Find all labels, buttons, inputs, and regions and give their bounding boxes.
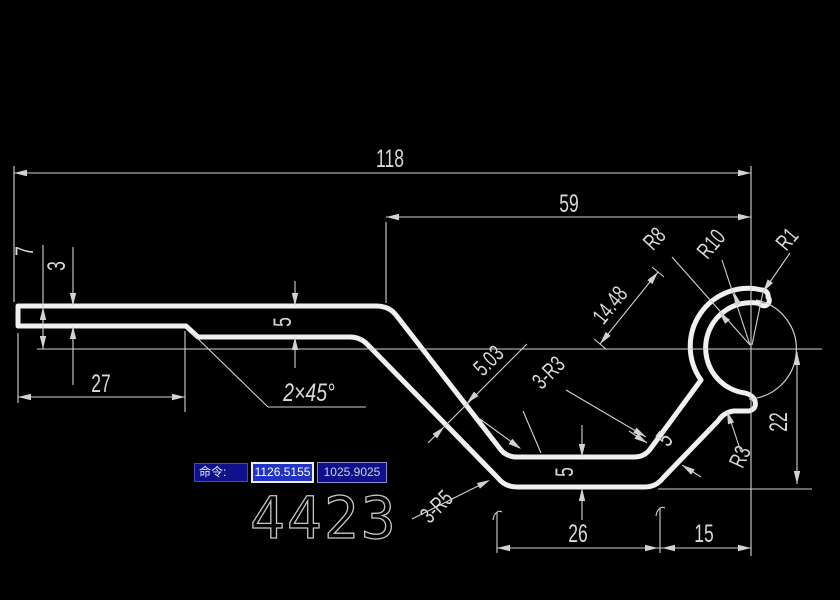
dim-diag-thickness: 5.03 [469, 341, 509, 381]
dim-web-thickness: 5 [268, 317, 297, 327]
part-profile-outline [18, 288, 769, 487]
dim-left-flat: 27 [91, 369, 110, 398]
note-fillets-r3: 3-R3 [528, 352, 571, 395]
dim-overall-length: 118 [376, 144, 404, 173]
dimension-arrowheads [14, 170, 800, 551]
profile-drawing: 118 59 7 3 27 2×45° 5 5.03 3-R3 14.48 R8… [0, 0, 840, 600]
chamfer-note: 2×45° [282, 379, 335, 407]
dim-hook-offset: 14.48 [588, 282, 633, 329]
radius-r3-label: R3 [725, 442, 757, 471]
dim-upper-length: 59 [559, 189, 578, 218]
coordinate-x-value: 1126.5155 [253, 464, 312, 481]
coordinate-x-input[interactable]: 1126.5155 [251, 462, 314, 483]
command-prompt: 命令: [194, 463, 248, 482]
cad-canvas: 118 59 7 3 27 2×45° 5 5.03 3-R3 14.48 R8… [0, 0, 840, 600]
radius-r1-label: R1 [771, 223, 804, 255]
note-fillets-r5: 3-R5 [416, 486, 459, 529]
radius-r8-label: R8 [639, 223, 672, 255]
dim-sheet-thickness: 3 [42, 261, 71, 271]
dim-right-flat: 15 [694, 519, 713, 548]
dim-bottom-flat: 26 [568, 519, 587, 548]
dim-bottom-thickness: 5 [550, 467, 579, 477]
coordinate-y-input[interactable]: 1025.9025 [317, 462, 387, 483]
radius-r10-label: R10 [692, 225, 731, 264]
part-number: 4423 [250, 484, 398, 552]
dim-left-height: 7 [10, 246, 39, 256]
dimension-lines [14, 166, 822, 556]
dim-hook-height: 22 [764, 412, 793, 431]
